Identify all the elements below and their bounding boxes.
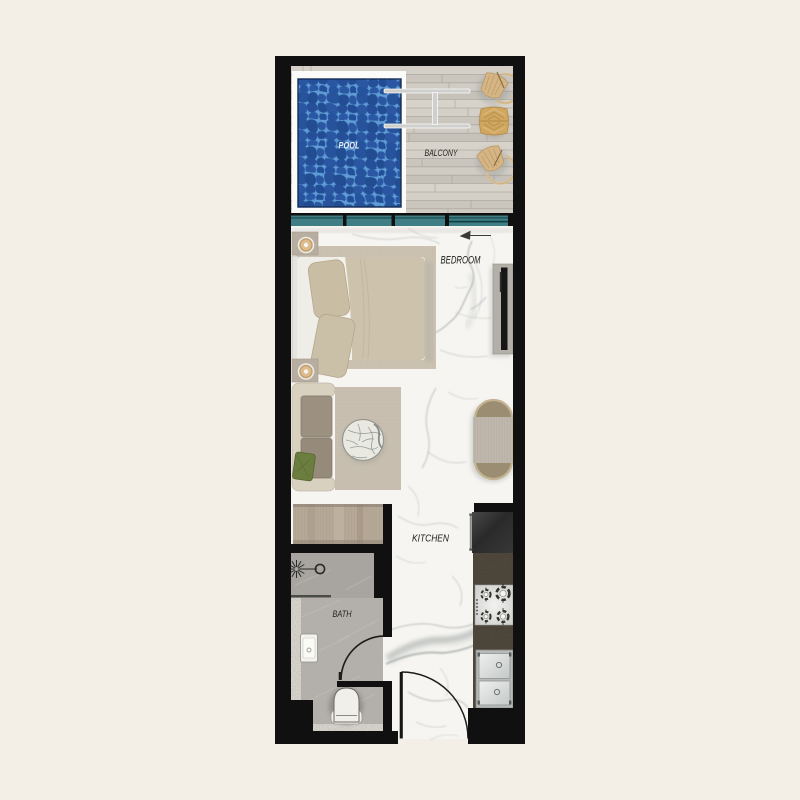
svg-text:BALCONY: BALCONY [425, 148, 459, 158]
svg-text:BATH: BATH [333, 609, 352, 620]
svg-text:BEDROOM: BEDROOM [441, 255, 481, 267]
svg-text:POOL: POOL [339, 141, 360, 151]
svg-text:KITCHEN: KITCHEN [412, 534, 450, 545]
